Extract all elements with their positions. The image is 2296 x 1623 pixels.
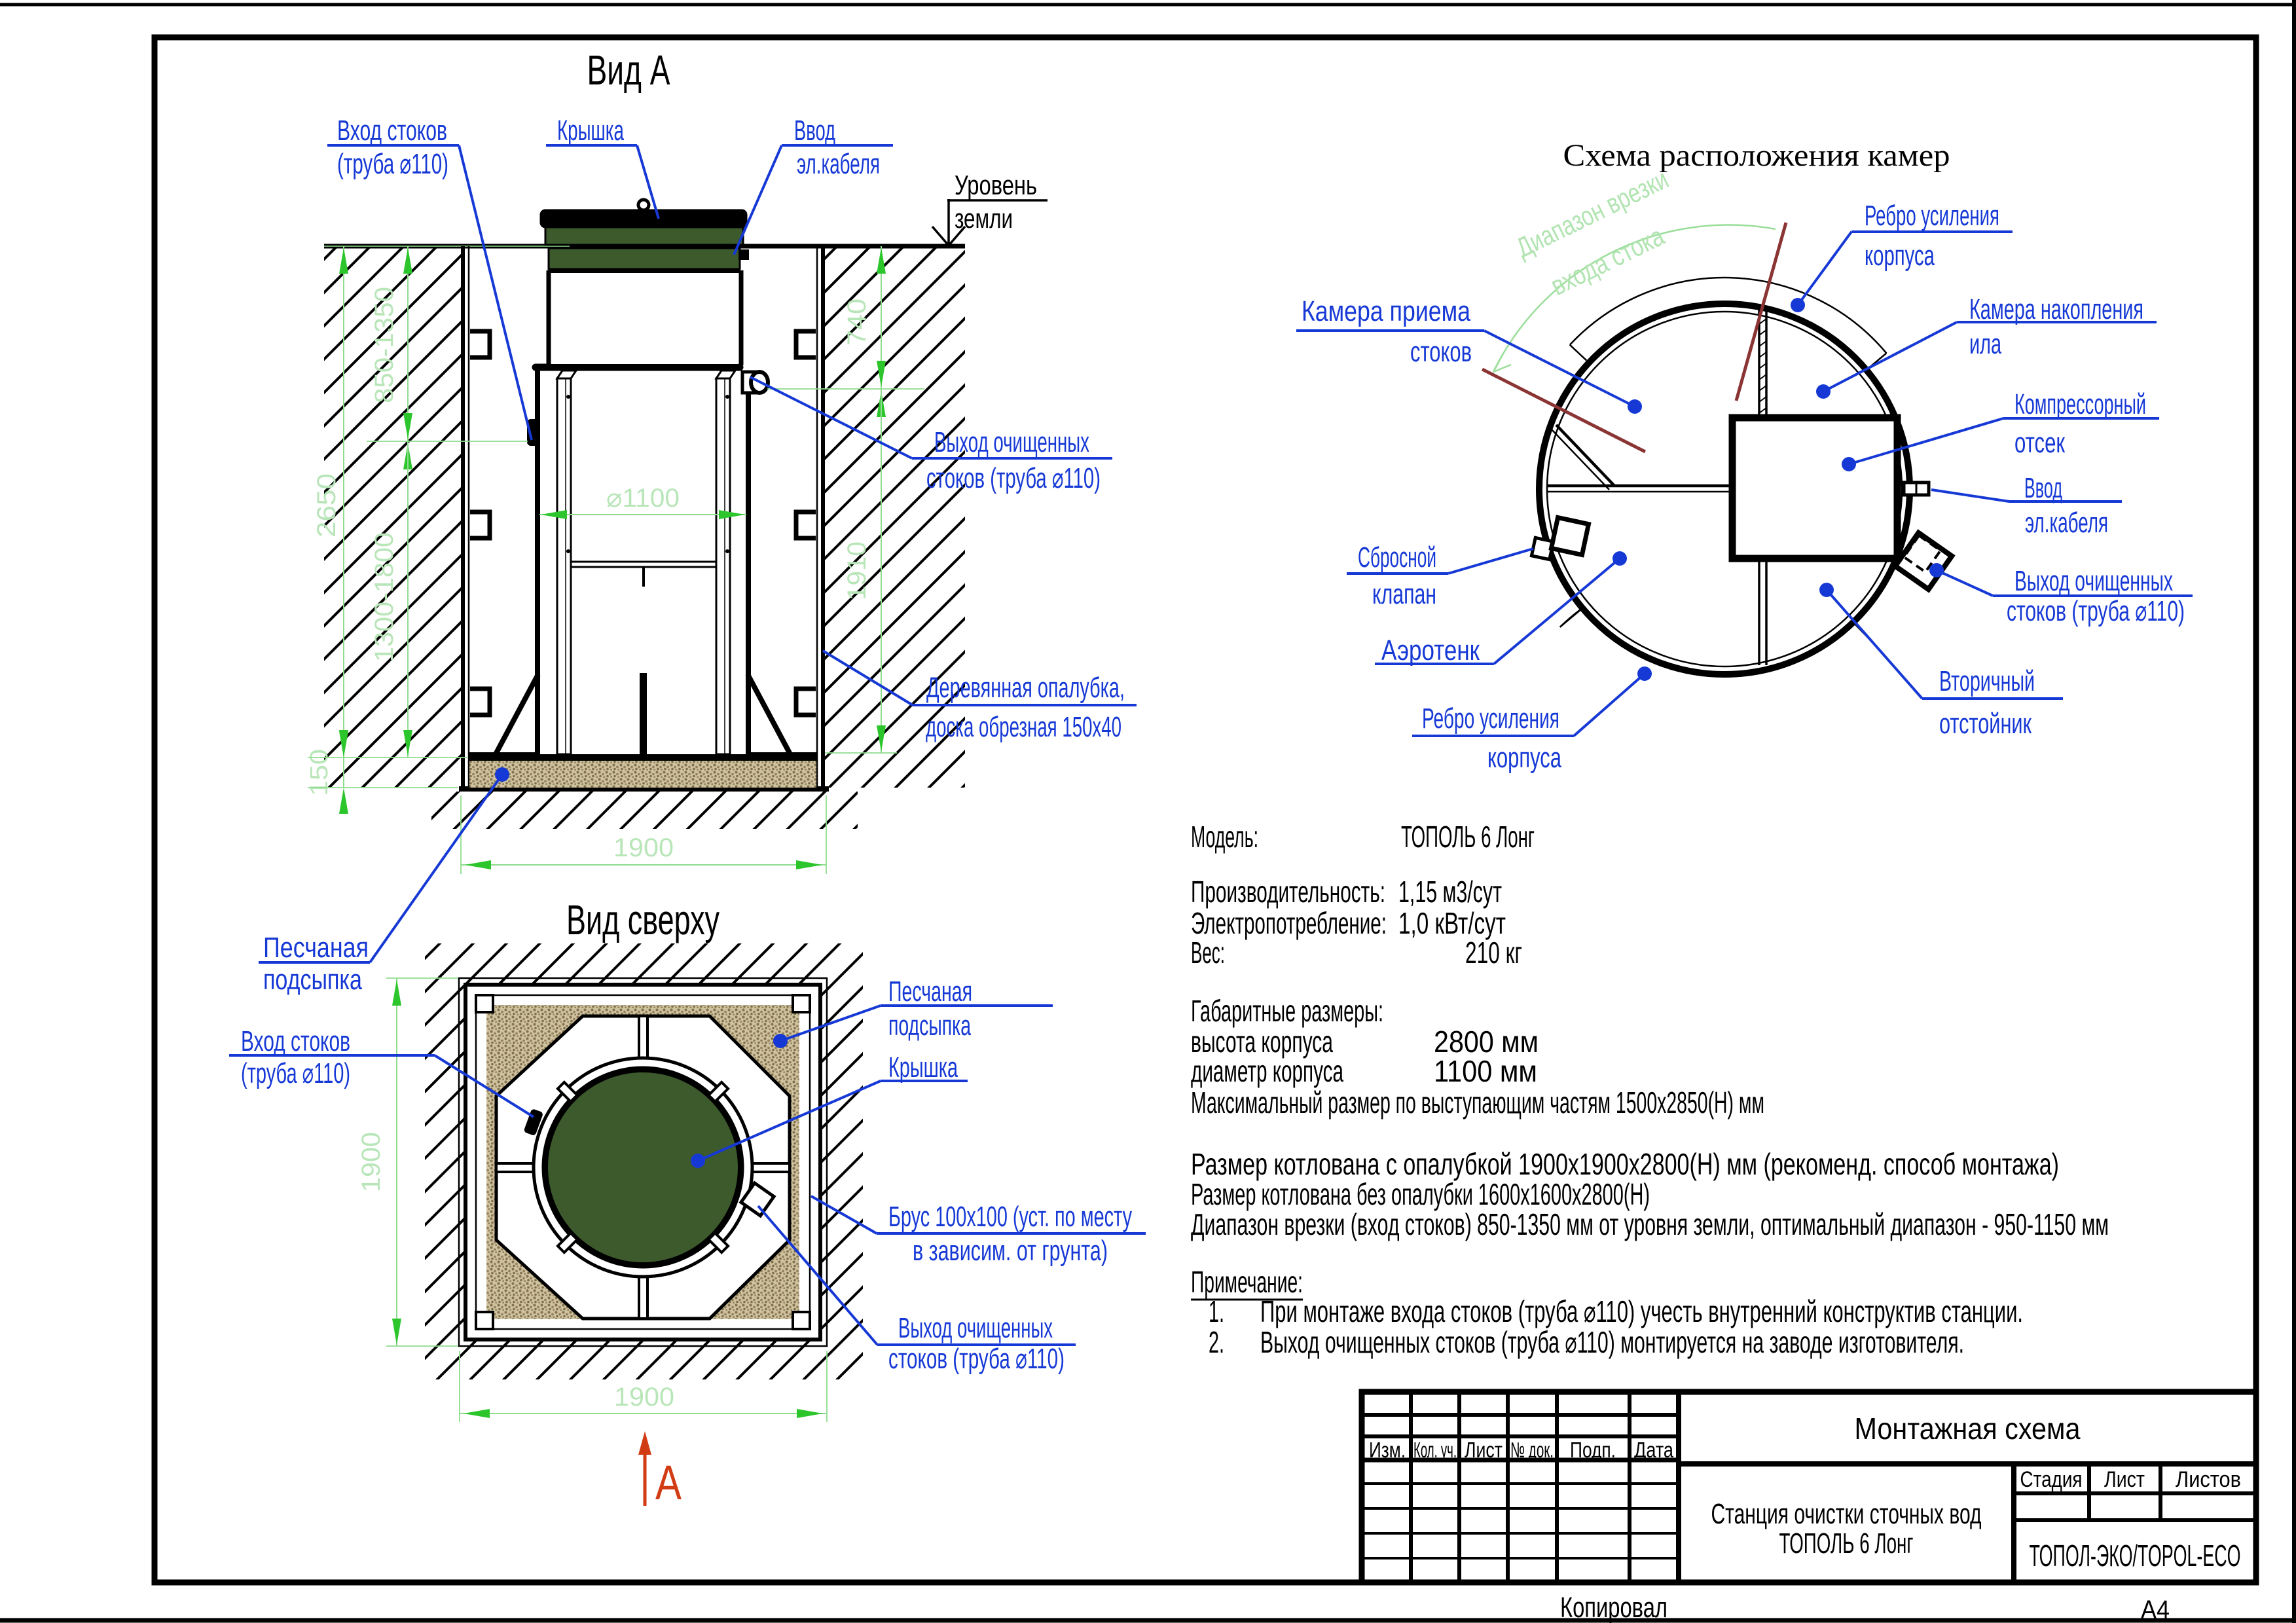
- svg-text:Станция очистки сточных вод: Станция очистки сточных вод: [1711, 1498, 1982, 1530]
- svg-text:Максимальный размер по выступа: Максимальный размер по выступающим частя…: [1191, 1085, 1764, 1120]
- svg-text:Выход очищенных: Выход очищенных: [934, 426, 1089, 458]
- svg-text:Габаритные размеры:: Габаритные размеры:: [1191, 994, 1383, 1028]
- svg-text:Модель:: Модель:: [1191, 820, 1258, 854]
- svg-text:Схема расположения камер: Схема расположения камер: [1563, 138, 1950, 173]
- svg-text:подсыпка: подсыпка: [263, 964, 362, 996]
- svg-text:Вход стоков: Вход стоков: [337, 115, 447, 147]
- svg-text:Изм.: Изм.: [1369, 1438, 1406, 1462]
- svg-text:1900: 1900: [613, 833, 674, 862]
- svg-text:Камера приема: Камера приема: [1302, 295, 1470, 327]
- svg-text:1100 мм: 1100 мм: [1434, 1054, 1537, 1088]
- svg-text:стоков (труба ⌀110): стоков (труба ⌀110): [2007, 595, 2185, 627]
- svg-text:Песчаная: Песчаная: [263, 932, 369, 964]
- svg-text:1900: 1900: [614, 1383, 674, 1412]
- svg-text:Стадия: Стадия: [2020, 1467, 2083, 1492]
- svg-text:Вторичный: Вторичный: [1939, 665, 2035, 697]
- svg-text:отсек: отсек: [2014, 427, 2066, 459]
- svg-text:ТОПОЛ-ЭКО/TOPOL-ECO: ТОПОЛ-ЭКО/TOPOL-ECO: [2030, 1539, 2241, 1573]
- svg-text:Ввод: Ввод: [794, 115, 835, 147]
- svg-text:Ввод: Ввод: [2024, 472, 2062, 504]
- svg-text:Размер котлована без опалубки: Размер котлована без опалубки 1600х1600х…: [1191, 1177, 1650, 1211]
- svg-text:Выход очищенных: Выход очищенных: [898, 1312, 1053, 1344]
- svg-text:2650: 2650: [312, 473, 341, 538]
- svg-text:(труба ⌀110): (труба ⌀110): [337, 148, 448, 180]
- svg-text:подсыпка: подсыпка: [888, 1010, 971, 1042]
- svg-text:доска обрезная 150х40: доска обрезная 150х40: [926, 711, 1121, 743]
- svg-text:150: 150: [306, 749, 333, 796]
- svg-text:А: А: [655, 1455, 682, 1510]
- svg-text:850-1350: 850-1350: [370, 287, 399, 403]
- svg-text:Монтажная схема: Монтажная схема: [1855, 1412, 2081, 1446]
- svg-text:(труба ⌀110): (труба ⌀110): [241, 1057, 350, 1089]
- svg-text:Деревянная опалубка,: Деревянная опалубка,: [926, 672, 1125, 704]
- svg-text:корпуса: корпуса: [1487, 742, 1561, 774]
- svg-text:земли: земли: [955, 203, 1013, 234]
- svg-text:Выход очищенных стоков (труба: Выход очищенных стоков (труба ⌀110) монт…: [1260, 1325, 1964, 1359]
- svg-text:Компрессорный: Компрессорный: [2014, 388, 2146, 420]
- svg-text:Брус 100х100 (уст. по месту: Брус 100х100 (уст. по месту: [888, 1201, 1132, 1233]
- svg-text:эл.кабеля: эл.кабеля: [797, 148, 880, 180]
- svg-text:Камера накопления: Камера накопления: [1969, 293, 2143, 325]
- svg-text:1900: 1900: [357, 1132, 386, 1192]
- svg-text:клапан: клапан: [1372, 578, 1436, 610]
- svg-text:1300-1800: 1300-1800: [370, 532, 399, 662]
- svg-text:стоков: стоков: [1410, 336, 1472, 368]
- svg-text:Песчаная: Песчаная: [888, 976, 972, 1008]
- svg-text:Крышка: Крышка: [888, 1051, 958, 1084]
- svg-text:Крышка: Крышка: [557, 115, 624, 147]
- svg-text:Ребро усиления: Ребро усиления: [1865, 200, 1999, 232]
- svg-text:№ док.: № док.: [1510, 1438, 1554, 1462]
- svg-text:1,15 м3/сут: 1,15 м3/сут: [1398, 875, 1502, 909]
- svg-text:диаметр корпуса: диаметр корпуса: [1191, 1054, 1343, 1088]
- svg-text:Диапазон врезки (вход стоков): Диапазон врезки (вход стоков) 850-1350 м…: [1191, 1207, 2109, 1241]
- svg-text:Выход очищенных: Выход очищенных: [2014, 565, 2173, 597]
- svg-text:отстойник: отстойник: [1939, 708, 2032, 740]
- svg-text:Производительность:: Производительность:: [1191, 875, 1385, 909]
- svg-text:Подп.: Подп.: [1570, 1438, 1616, 1462]
- svg-text:Дата: Дата: [1634, 1438, 1674, 1462]
- svg-text:А4: А4: [2141, 1596, 2170, 1623]
- svg-text:Лист: Лист: [1465, 1438, 1503, 1462]
- svg-text:⌀1100: ⌀1100: [606, 484, 680, 513]
- svg-text:Вид сверху: Вид сверху: [566, 896, 720, 943]
- svg-text:ила: ила: [1969, 328, 2001, 360]
- svg-text:Кол. уч.: Кол. уч.: [1413, 1438, 1457, 1462]
- svg-text:Вес:: Вес:: [1191, 936, 1225, 970]
- svg-text:Вход стоков: Вход стоков: [241, 1025, 350, 1057]
- svg-text:Аэротенк: Аэротенк: [1381, 634, 1480, 666]
- svg-text:Ребро усиления: Ребро усиления: [1422, 702, 1559, 735]
- svg-text:Уровень: Уровень: [955, 170, 1037, 200]
- svg-text:210 кг: 210 кг: [1465, 936, 1522, 970]
- svg-text:740: 740: [843, 299, 871, 346]
- svg-text:При монтаже входа стоков (тру: При монтаже входа стоков (труба ⌀110) уч…: [1260, 1294, 2023, 1328]
- svg-text:Вид А: Вид А: [587, 46, 670, 94]
- svg-text:Листов: Листов: [2176, 1467, 2241, 1492]
- svg-text:1910: 1910: [843, 541, 871, 600]
- svg-text:ТОПОЛЬ 6 Лонг: ТОПОЛЬ 6 Лонг: [1779, 1527, 1914, 1559]
- svg-text:2.: 2.: [1209, 1325, 1224, 1359]
- svg-text:Размер котлована с опалубкой 1: Размер котлована с опалубкой 1900х1900х2…: [1191, 1147, 2059, 1181]
- svg-text:1.: 1.: [1209, 1294, 1224, 1328]
- svg-text:Копировал: Копировал: [1560, 1592, 1667, 1623]
- svg-text:стоков (труба ⌀110): стоков (труба ⌀110): [926, 462, 1101, 494]
- svg-text:корпуса: корпуса: [1865, 240, 1935, 272]
- svg-text:ТОПОЛЬ 6 Лонг: ТОПОЛЬ 6 Лонг: [1401, 820, 1535, 854]
- svg-text:Лист: Лист: [2104, 1467, 2145, 1492]
- svg-text:эл.кабеля: эл.кабеля: [2025, 507, 2108, 539]
- svg-text:в зависим. от грунта): в зависим. от грунта): [913, 1235, 1108, 1267]
- svg-text:Сбросной: Сбросной: [1358, 541, 1436, 574]
- svg-text:стоков (труба ⌀110): стоков (труба ⌀110): [888, 1343, 1065, 1375]
